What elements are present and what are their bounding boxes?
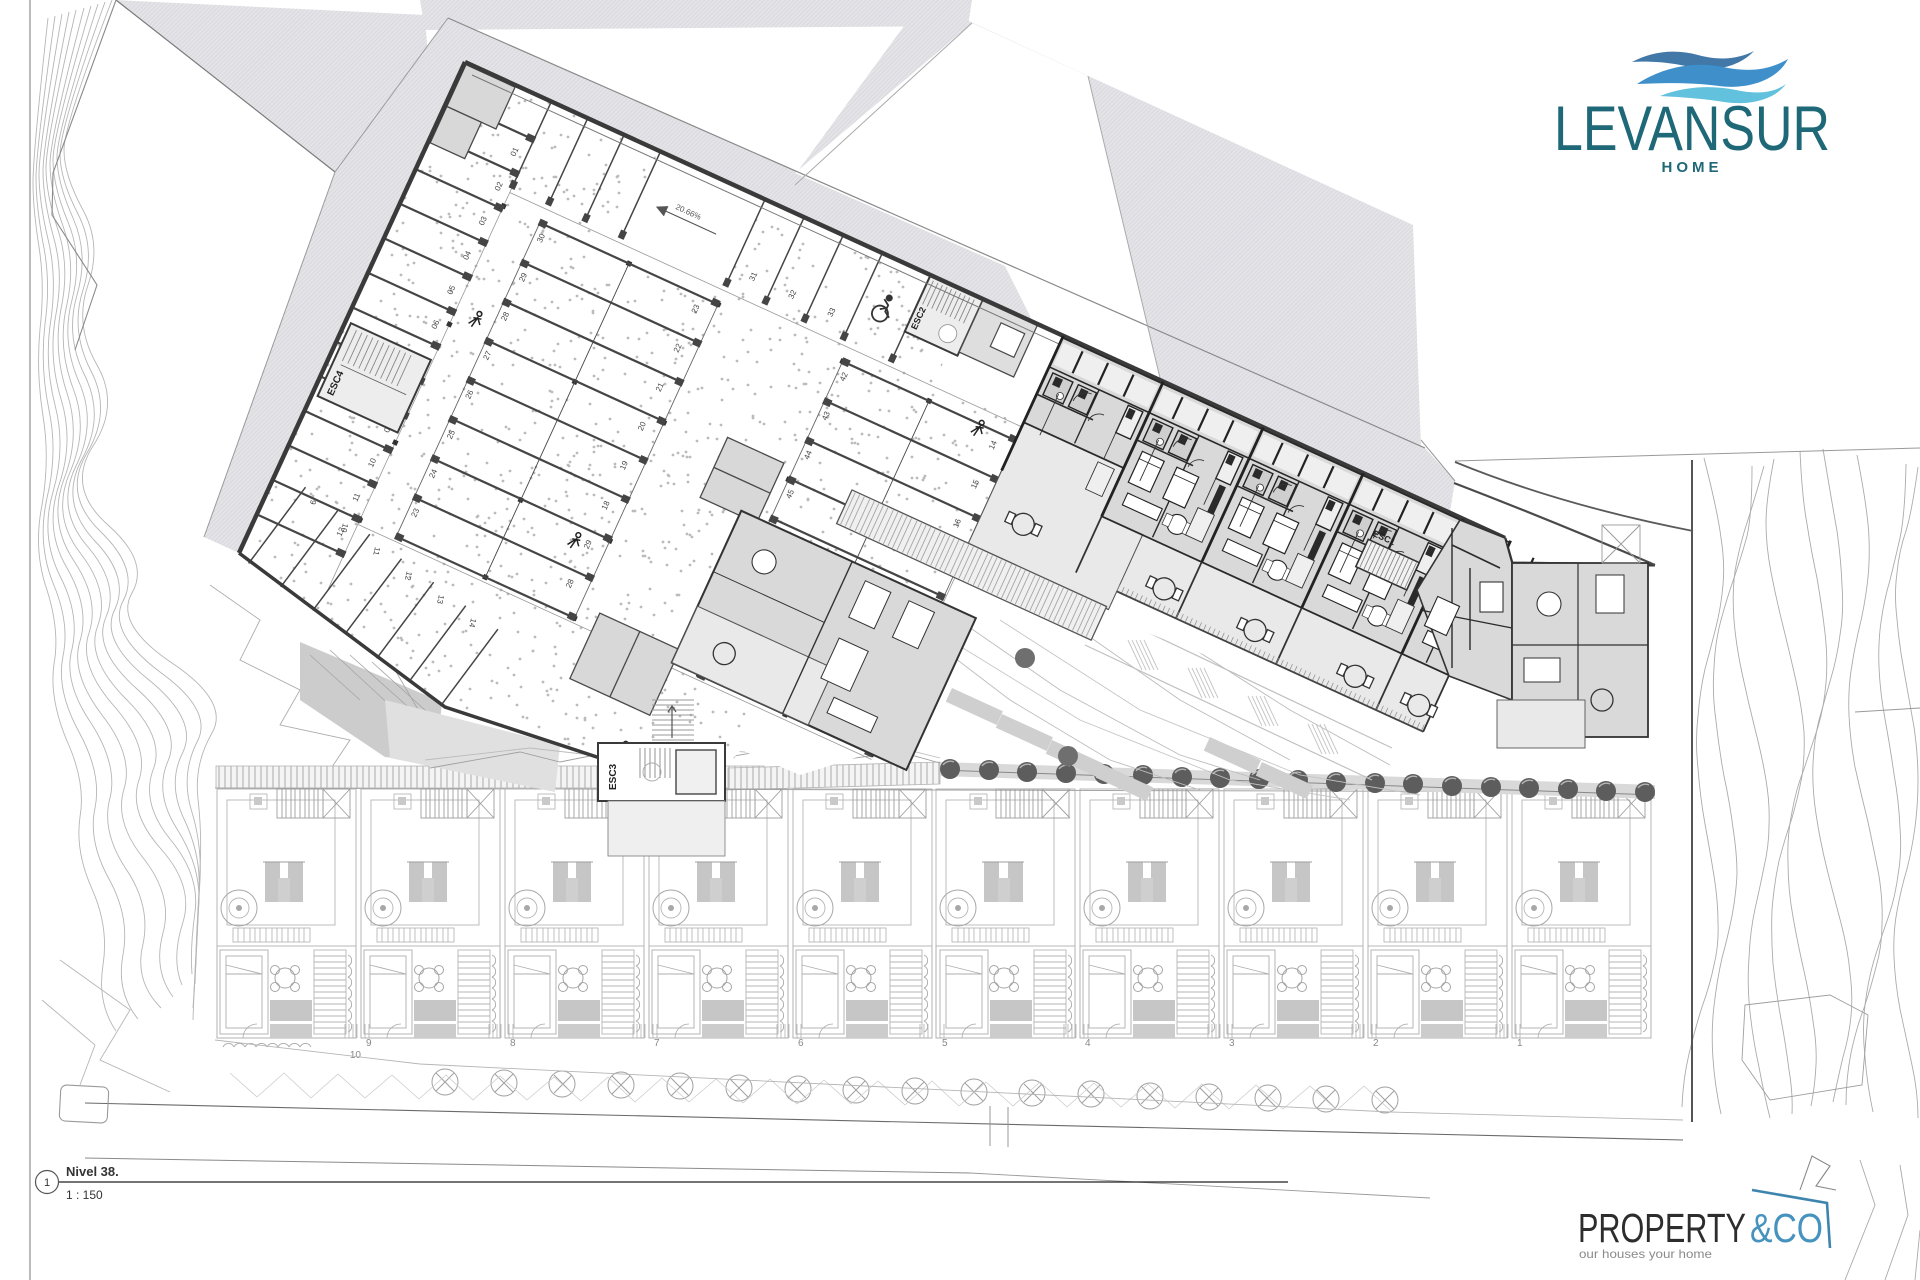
svg-text:4: 4 — [1085, 1038, 1091, 1049]
svg-text:HOME: HOME — [1662, 159, 1723, 176]
svg-text:1 : 150: 1 : 150 — [66, 1188, 103, 1202]
svg-text:10: 10 — [350, 1050, 362, 1061]
svg-text:1: 1 — [44, 1177, 50, 1189]
svg-text:ESC3: ESC3 — [608, 763, 619, 790]
svg-text:LEVANSUR: LEVANSUR — [1554, 94, 1830, 164]
svg-text:6: 6 — [798, 1038, 804, 1049]
svg-text:5: 5 — [942, 1038, 948, 1049]
svg-text:2: 2 — [1373, 1038, 1379, 1049]
svg-text:our houses your home: our houses your home — [1579, 1247, 1712, 1261]
svg-text:9: 9 — [366, 1038, 372, 1049]
svg-text:1: 1 — [1517, 1038, 1523, 1049]
svg-text:7: 7 — [654, 1038, 660, 1049]
svg-text:3: 3 — [1229, 1038, 1235, 1049]
svg-text:&CO: &CO — [1750, 1205, 1823, 1251]
svg-text:8: 8 — [510, 1038, 516, 1049]
svg-text:PROPERTY: PROPERTY — [1578, 1205, 1746, 1251]
svg-text:Nivel 38.: Nivel 38. — [66, 1164, 119, 1179]
